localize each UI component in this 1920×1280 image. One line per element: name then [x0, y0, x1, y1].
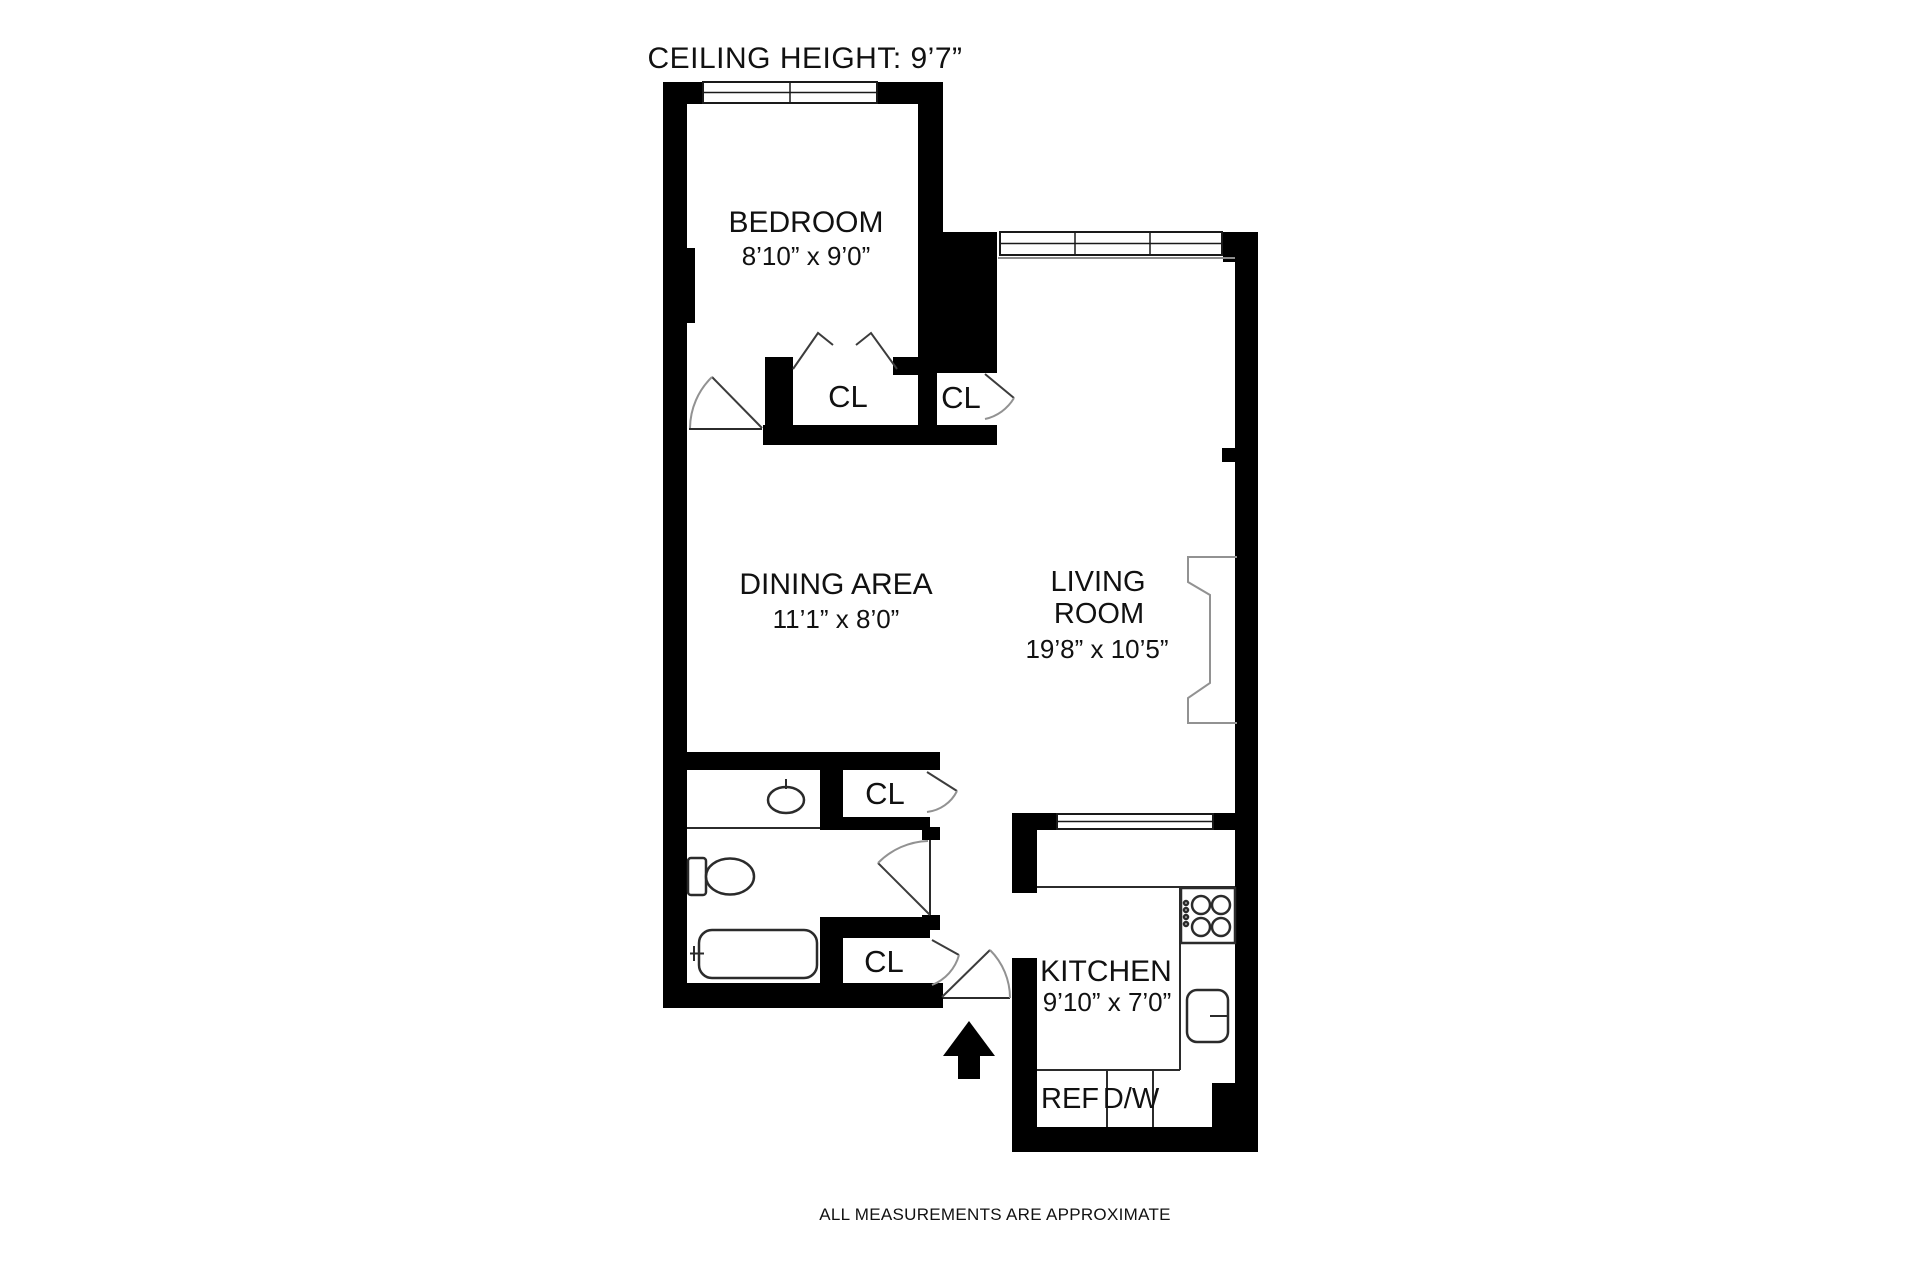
living-room-window — [998, 232, 1235, 258]
hall-closet1-door — [927, 772, 957, 812]
wall-bedroom-top-right — [877, 82, 943, 104]
kitchen-dims: 9’10” x 7’0” — [1043, 987, 1172, 1017]
kitchen-window — [1057, 814, 1213, 829]
wall-right — [1235, 262, 1258, 1083]
radiator-icon — [1188, 557, 1237, 723]
bedroom-window — [703, 82, 877, 103]
wall-kitchen-west-lower — [1012, 958, 1037, 1152]
footer-disclaimer: ALL MEASUREMENTS ARE APPROXIMATE — [819, 1205, 1171, 1224]
wall-hall-closet2-west — [820, 938, 843, 983]
wall-right-step — [1222, 448, 1237, 462]
wall-closet-mid-west — [918, 373, 937, 425]
wall-closet-east-stub — [893, 357, 918, 375]
wall-center-column — [918, 232, 997, 373]
mid-closet-label: CL — [941, 380, 981, 415]
hall-closet2-label: CL — [864, 944, 904, 979]
windows — [703, 82, 1235, 829]
wall-kitchen-bottom — [1012, 1127, 1212, 1152]
bedroom-closet-label: CL — [828, 379, 868, 414]
wall-bathdoor-jamb-top — [922, 827, 940, 840]
kitchen-label: KITCHEN — [1040, 955, 1172, 988]
bathroom-sink-icon — [768, 779, 804, 813]
kitchen-sink-icon — [1187, 990, 1228, 1042]
ceiling-height-title: CEILING HEIGHT: 9’7” — [647, 42, 962, 75]
living-room-label-line2: ROOM — [1054, 598, 1144, 630]
wall-bedroom-closet-stub — [765, 357, 793, 429]
wall-bedroom-east — [918, 104, 943, 232]
hall-closet2-door — [932, 940, 959, 985]
wall-hall-closet1-bottom — [830, 817, 930, 830]
dishwasher-label: D/W — [1103, 1083, 1160, 1115]
wall-se-corner — [1212, 1083, 1258, 1152]
wall-hall-closet2-top — [820, 917, 930, 938]
dining-area-label: DINING AREA — [739, 568, 932, 601]
dining-area-dims: 11’1” x 8’0” — [773, 604, 900, 634]
refrigerator-label: REF — [1041, 1083, 1099, 1115]
entry-arrow-icon — [943, 1021, 995, 1079]
living-room-label-line1: LIVING — [1050, 566, 1145, 598]
wall-bottom-west — [663, 983, 943, 1008]
stove-icon — [1181, 888, 1235, 943]
wall-left-pilaster — [663, 248, 695, 323]
wall-kitchen-west-stub — [1012, 830, 1037, 893]
wall-closets-bottom — [763, 425, 997, 445]
hall-closet1-label: CL — [865, 776, 905, 811]
bathroom-door — [878, 840, 930, 915]
living-room-dims: 19’8” x 10’5” — [1025, 634, 1168, 664]
wall-dining-bath — [663, 752, 940, 770]
wall-kitchen-top-right — [1213, 813, 1237, 830]
wall-bedroom-top-left — [663, 82, 703, 104]
bathtub-icon — [690, 930, 817, 978]
bedroom-closet-bifold-door — [793, 333, 897, 369]
mid-closet-door — [985, 374, 1014, 419]
bedroom-dims: 8’10” x 9’0” — [742, 241, 871, 271]
bathroom-fixtures — [687, 779, 820, 978]
entry-door — [942, 950, 1010, 998]
labels: CEILING HEIGHT: 9’7” BEDROOM 8’10” x 9’0… — [647, 42, 1171, 1224]
wall-kitchen-top-left — [1012, 813, 1057, 830]
floor-plan: CEILING HEIGHT: 9’7” BEDROOM 8’10” x 9’0… — [0, 0, 1920, 1280]
bedroom-door — [689, 377, 762, 429]
wall-left — [663, 82, 687, 1008]
bedroom-label: BEDROOM — [728, 206, 883, 239]
toilet-icon — [688, 858, 754, 895]
